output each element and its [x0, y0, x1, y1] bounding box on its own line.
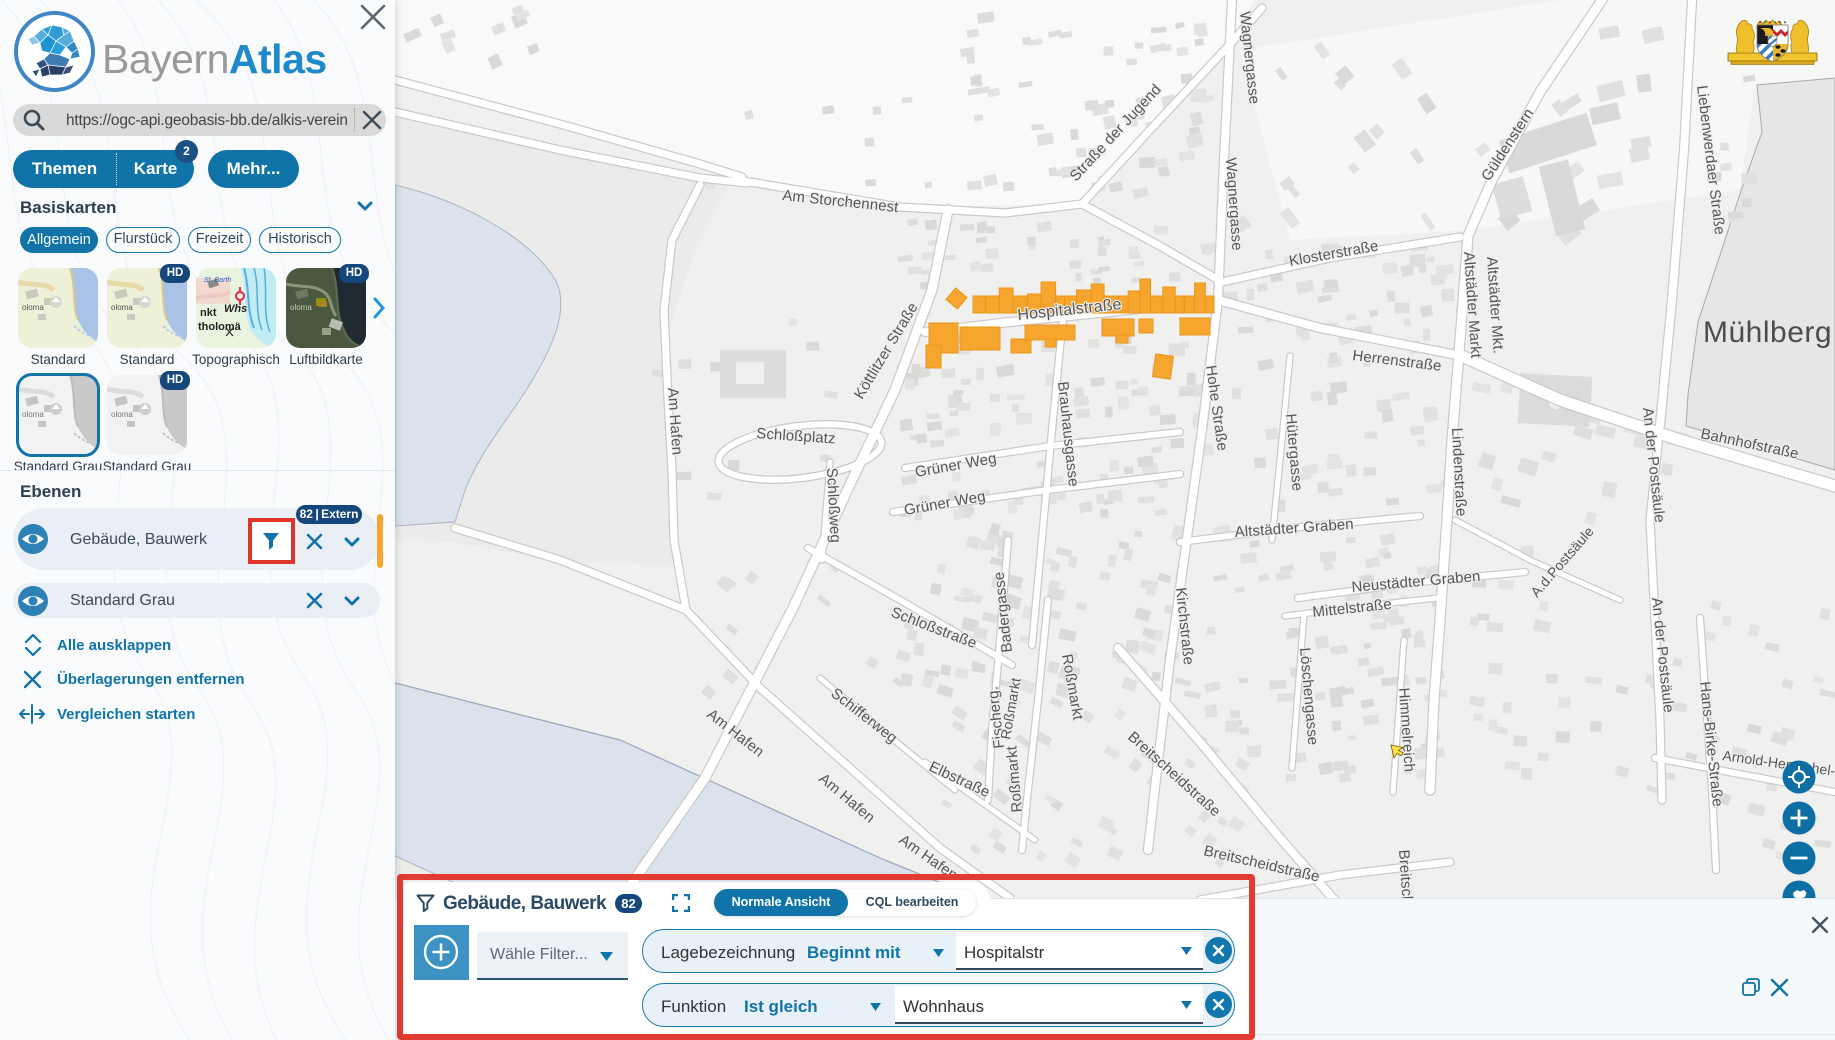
svg-text:oloma: oloma: [22, 410, 44, 419]
svg-text:St. Barth: St. Barth: [204, 277, 231, 284]
svg-text:oloma: oloma: [290, 303, 312, 312]
svg-text:Whs: Whs: [224, 303, 247, 315]
svg-text:tholomä: tholomä: [198, 321, 242, 333]
svg-text:oloma: oloma: [22, 303, 44, 312]
svg-text:Mühlberg: Mühlberg: [1703, 316, 1832, 349]
svg-text:nkt: nkt: [200, 307, 217, 319]
svg-text:oloma: oloma: [111, 410, 133, 419]
svg-text:oloma: oloma: [111, 303, 133, 312]
